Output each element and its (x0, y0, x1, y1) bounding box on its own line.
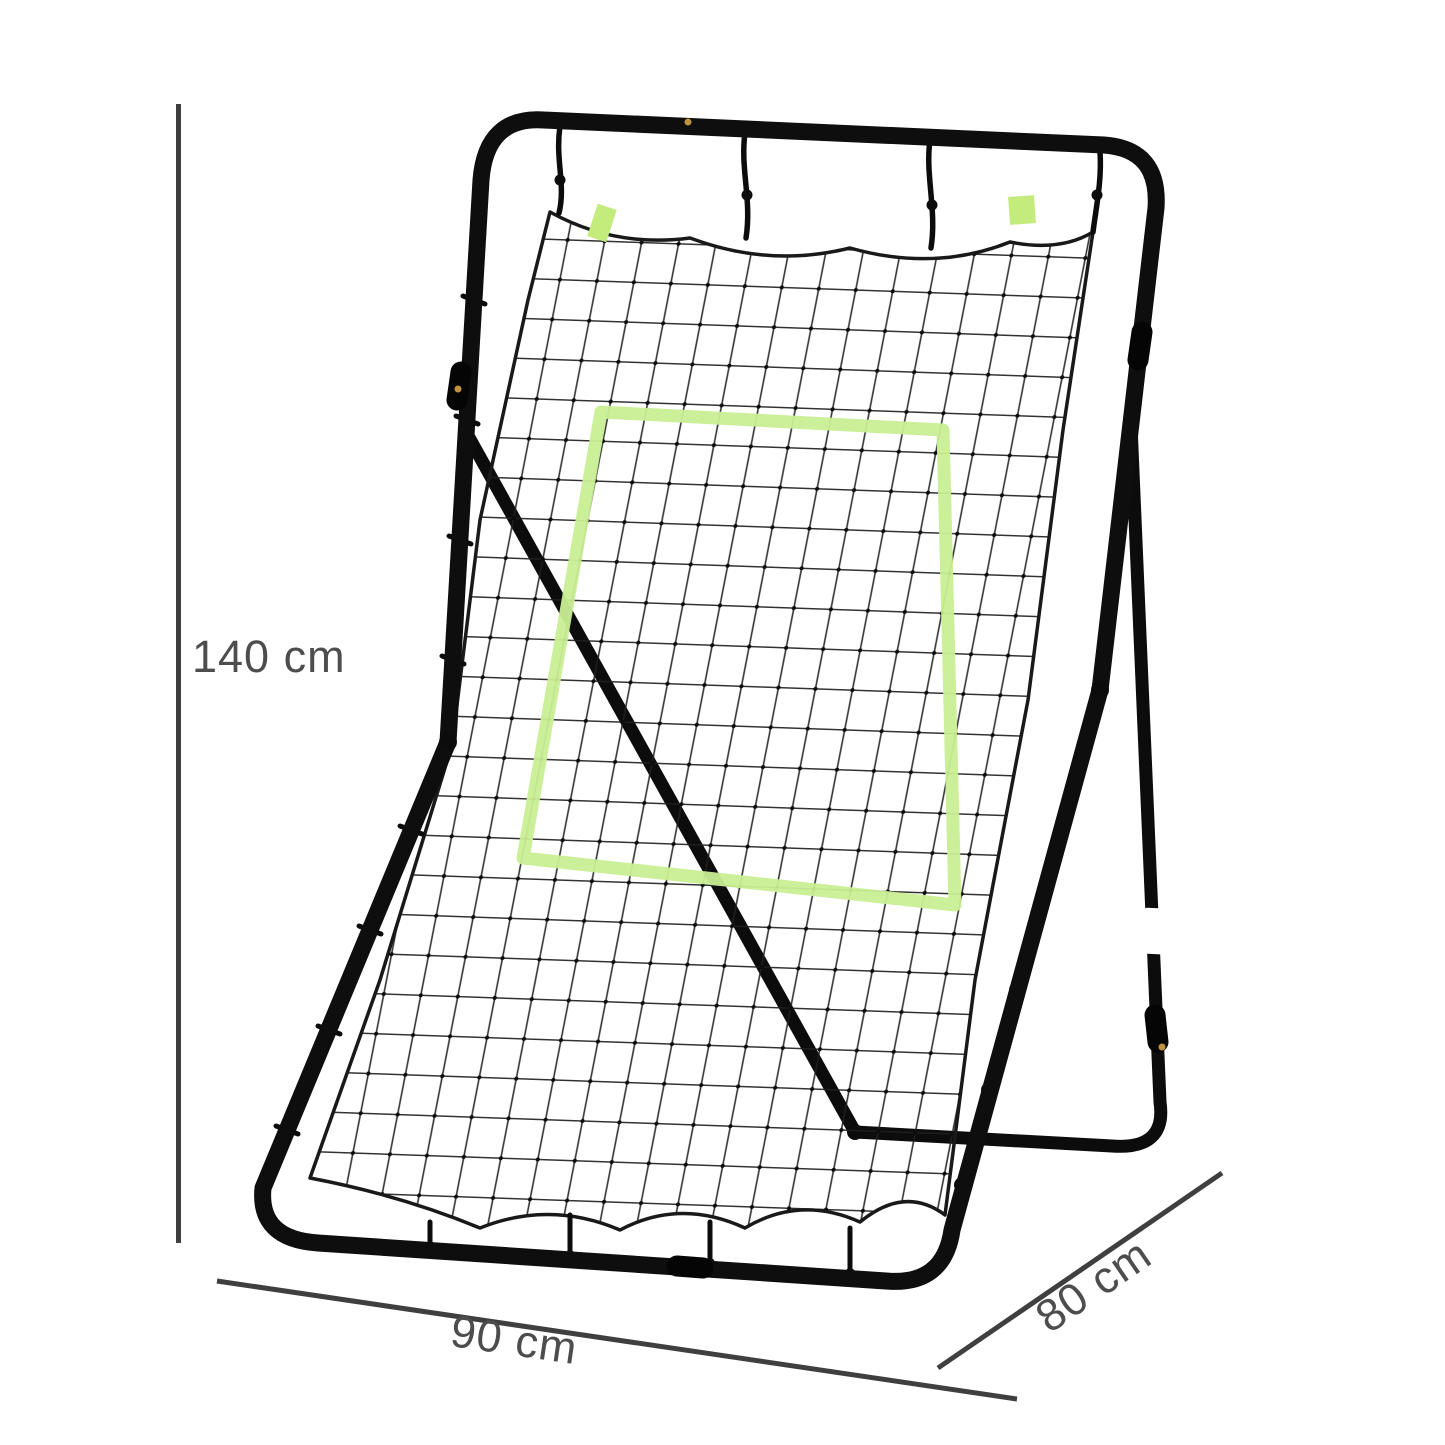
bungee-hook (929, 140, 933, 248)
rebounder-illustration: 140 cm 90 cm 80 cm (0, 0, 1445, 1445)
net-tags (587, 195, 1036, 242)
screw-icon (685, 119, 692, 126)
height-label: 140 cm (192, 631, 346, 682)
net-tag-right (1008, 195, 1036, 225)
s-hook-icon (1092, 190, 1103, 201)
width-label: 90 cm (447, 1305, 581, 1374)
sleeve-bottom-bar (677, 1266, 703, 1268)
net-mesh (310, 212, 1093, 1230)
bungee-hook (559, 126, 562, 213)
pivot-right (1091, 681, 1109, 699)
width-dimension-line (217, 1281, 1017, 1399)
s-hook-icon (927, 200, 938, 211)
sleeve-right-rail (1138, 332, 1142, 360)
screw-icon (1159, 1044, 1166, 1051)
s-hook-icon (555, 175, 566, 186)
depth-label: 80 cm (1026, 1228, 1160, 1342)
s-hook-icon (742, 190, 753, 201)
leg-adjustment-band (1142, 908, 1165, 955)
pivot-left (439, 733, 457, 751)
product-dimension-illustration: 140 cm 90 cm 80 cm (0, 0, 1445, 1445)
screw-icon (455, 386, 462, 393)
sleeve-right-leg (1155, 1015, 1158, 1042)
bungee-hook (744, 133, 748, 238)
